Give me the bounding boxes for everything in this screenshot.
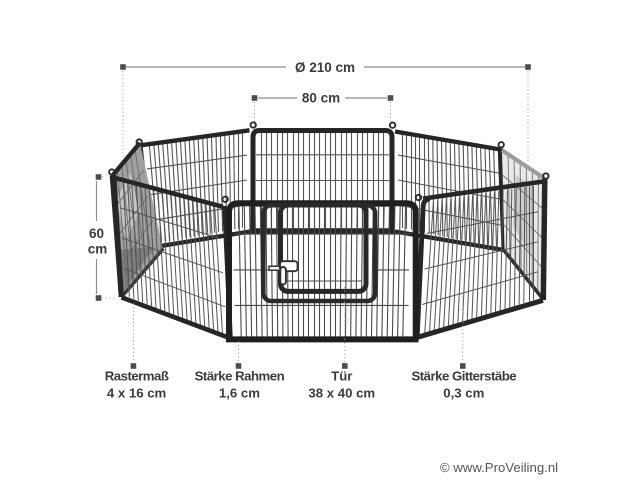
svg-text:Tür: Tür [331,369,352,384]
svg-text:0,3 cm: 0,3 cm [443,386,484,401]
svg-text:1,6 cm: 1,6 cm [219,386,260,401]
svg-text:Stärke Gitterstäbe: Stärke Gitterstäbe [411,369,516,384]
svg-text:Ø 210 cm: Ø 210 cm [295,60,355,75]
svg-text:© www.ProVeiling.nl: © www.ProVeiling.nl [440,460,558,475]
svg-text:Stärke Rahmen: Stärke Rahmen [195,369,285,384]
svg-text:cm: cm [88,242,108,257]
svg-text:60: 60 [89,226,104,241]
svg-text:80 cm: 80 cm [302,91,340,106]
svg-text:38 x 40 cm: 38 x 40 cm [308,386,375,401]
svg-text:Rastermaß: Rastermaß [105,369,169,384]
svg-text:4 x 16 cm: 4 x 16 cm [107,386,166,401]
